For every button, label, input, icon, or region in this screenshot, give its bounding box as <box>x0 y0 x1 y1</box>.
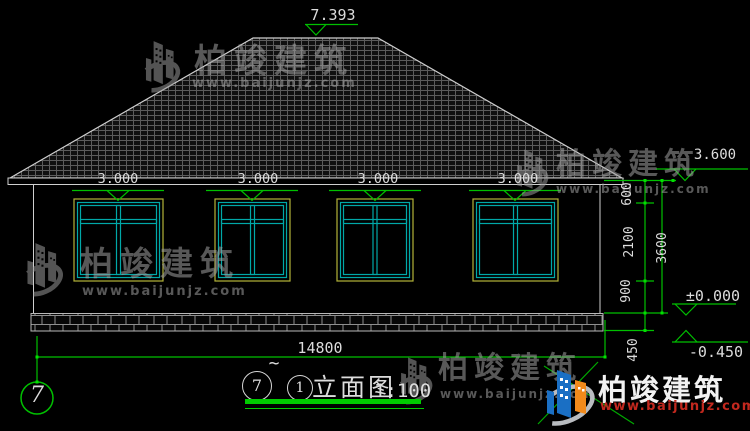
level-window-1: 3.000 <box>88 171 148 187</box>
title-underline-thin <box>245 408 424 409</box>
title-tilde: ~ <box>266 353 282 374</box>
brand-url-text: www.baijunjz.com <box>600 399 750 414</box>
level-floor: ±0.000 <box>681 287 745 305</box>
level-eave: 3.600 <box>686 147 744 163</box>
dim-2100: 2100 <box>623 219 637 265</box>
dim-900: 900 <box>620 268 634 314</box>
plinth-band <box>31 314 603 332</box>
watermark-logo-icon <box>16 240 66 302</box>
watermark-brand-text: 柏竣建筑 <box>194 44 354 77</box>
dim-3600: 3600 <box>656 225 670 271</box>
dim-600: 600 <box>621 171 635 217</box>
level-ridge: 7.393 <box>303 6 363 24</box>
cad-elevation-canvas: 柏竣建筑 www.baijunjz.com 柏竣建筑 www.baijunjz.… <box>0 0 750 431</box>
title-axis-to-bubble: 1 <box>287 375 313 401</box>
title-underline-thick <box>245 399 421 404</box>
level-window-2: 3.000 <box>228 171 288 187</box>
title-axis-from-bubble: 7 <box>242 371 272 401</box>
level-window-4: 3.000 <box>488 171 548 187</box>
watermark-logo-icon <box>136 38 182 98</box>
brand-logo-icon <box>535 362 597 428</box>
watermark-url-text: www.baijunjz.com <box>192 77 357 90</box>
level-window-3: 3.000 <box>348 171 408 187</box>
level-ground: -0.450 <box>684 343 748 361</box>
dim-14800: 14800 <box>288 339 352 357</box>
axis-bubble-label: 7 <box>22 383 52 408</box>
watermark-brand-text: 柏竣建筑 <box>80 247 240 280</box>
watermark-url-text: www.baijunjz.com <box>82 285 247 298</box>
